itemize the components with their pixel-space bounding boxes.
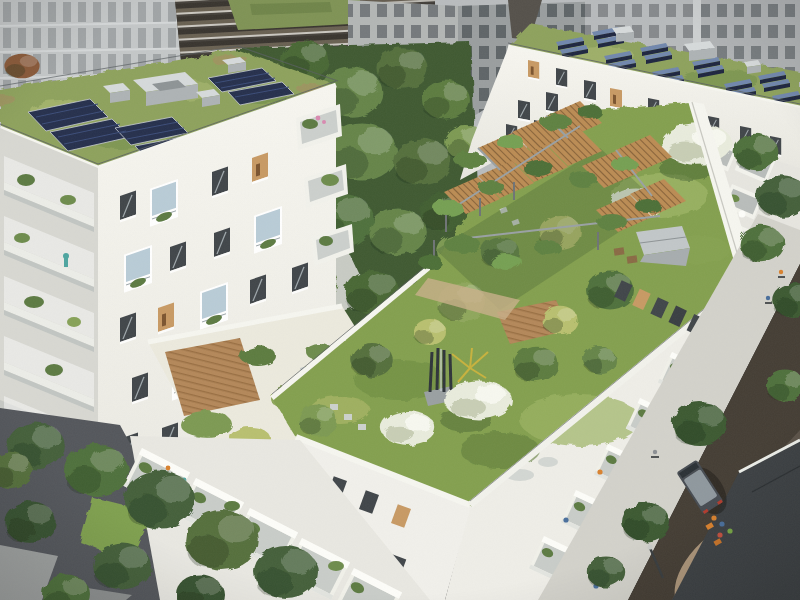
aerial-render: [0, 0, 800, 600]
vignette: [0, 0, 800, 600]
